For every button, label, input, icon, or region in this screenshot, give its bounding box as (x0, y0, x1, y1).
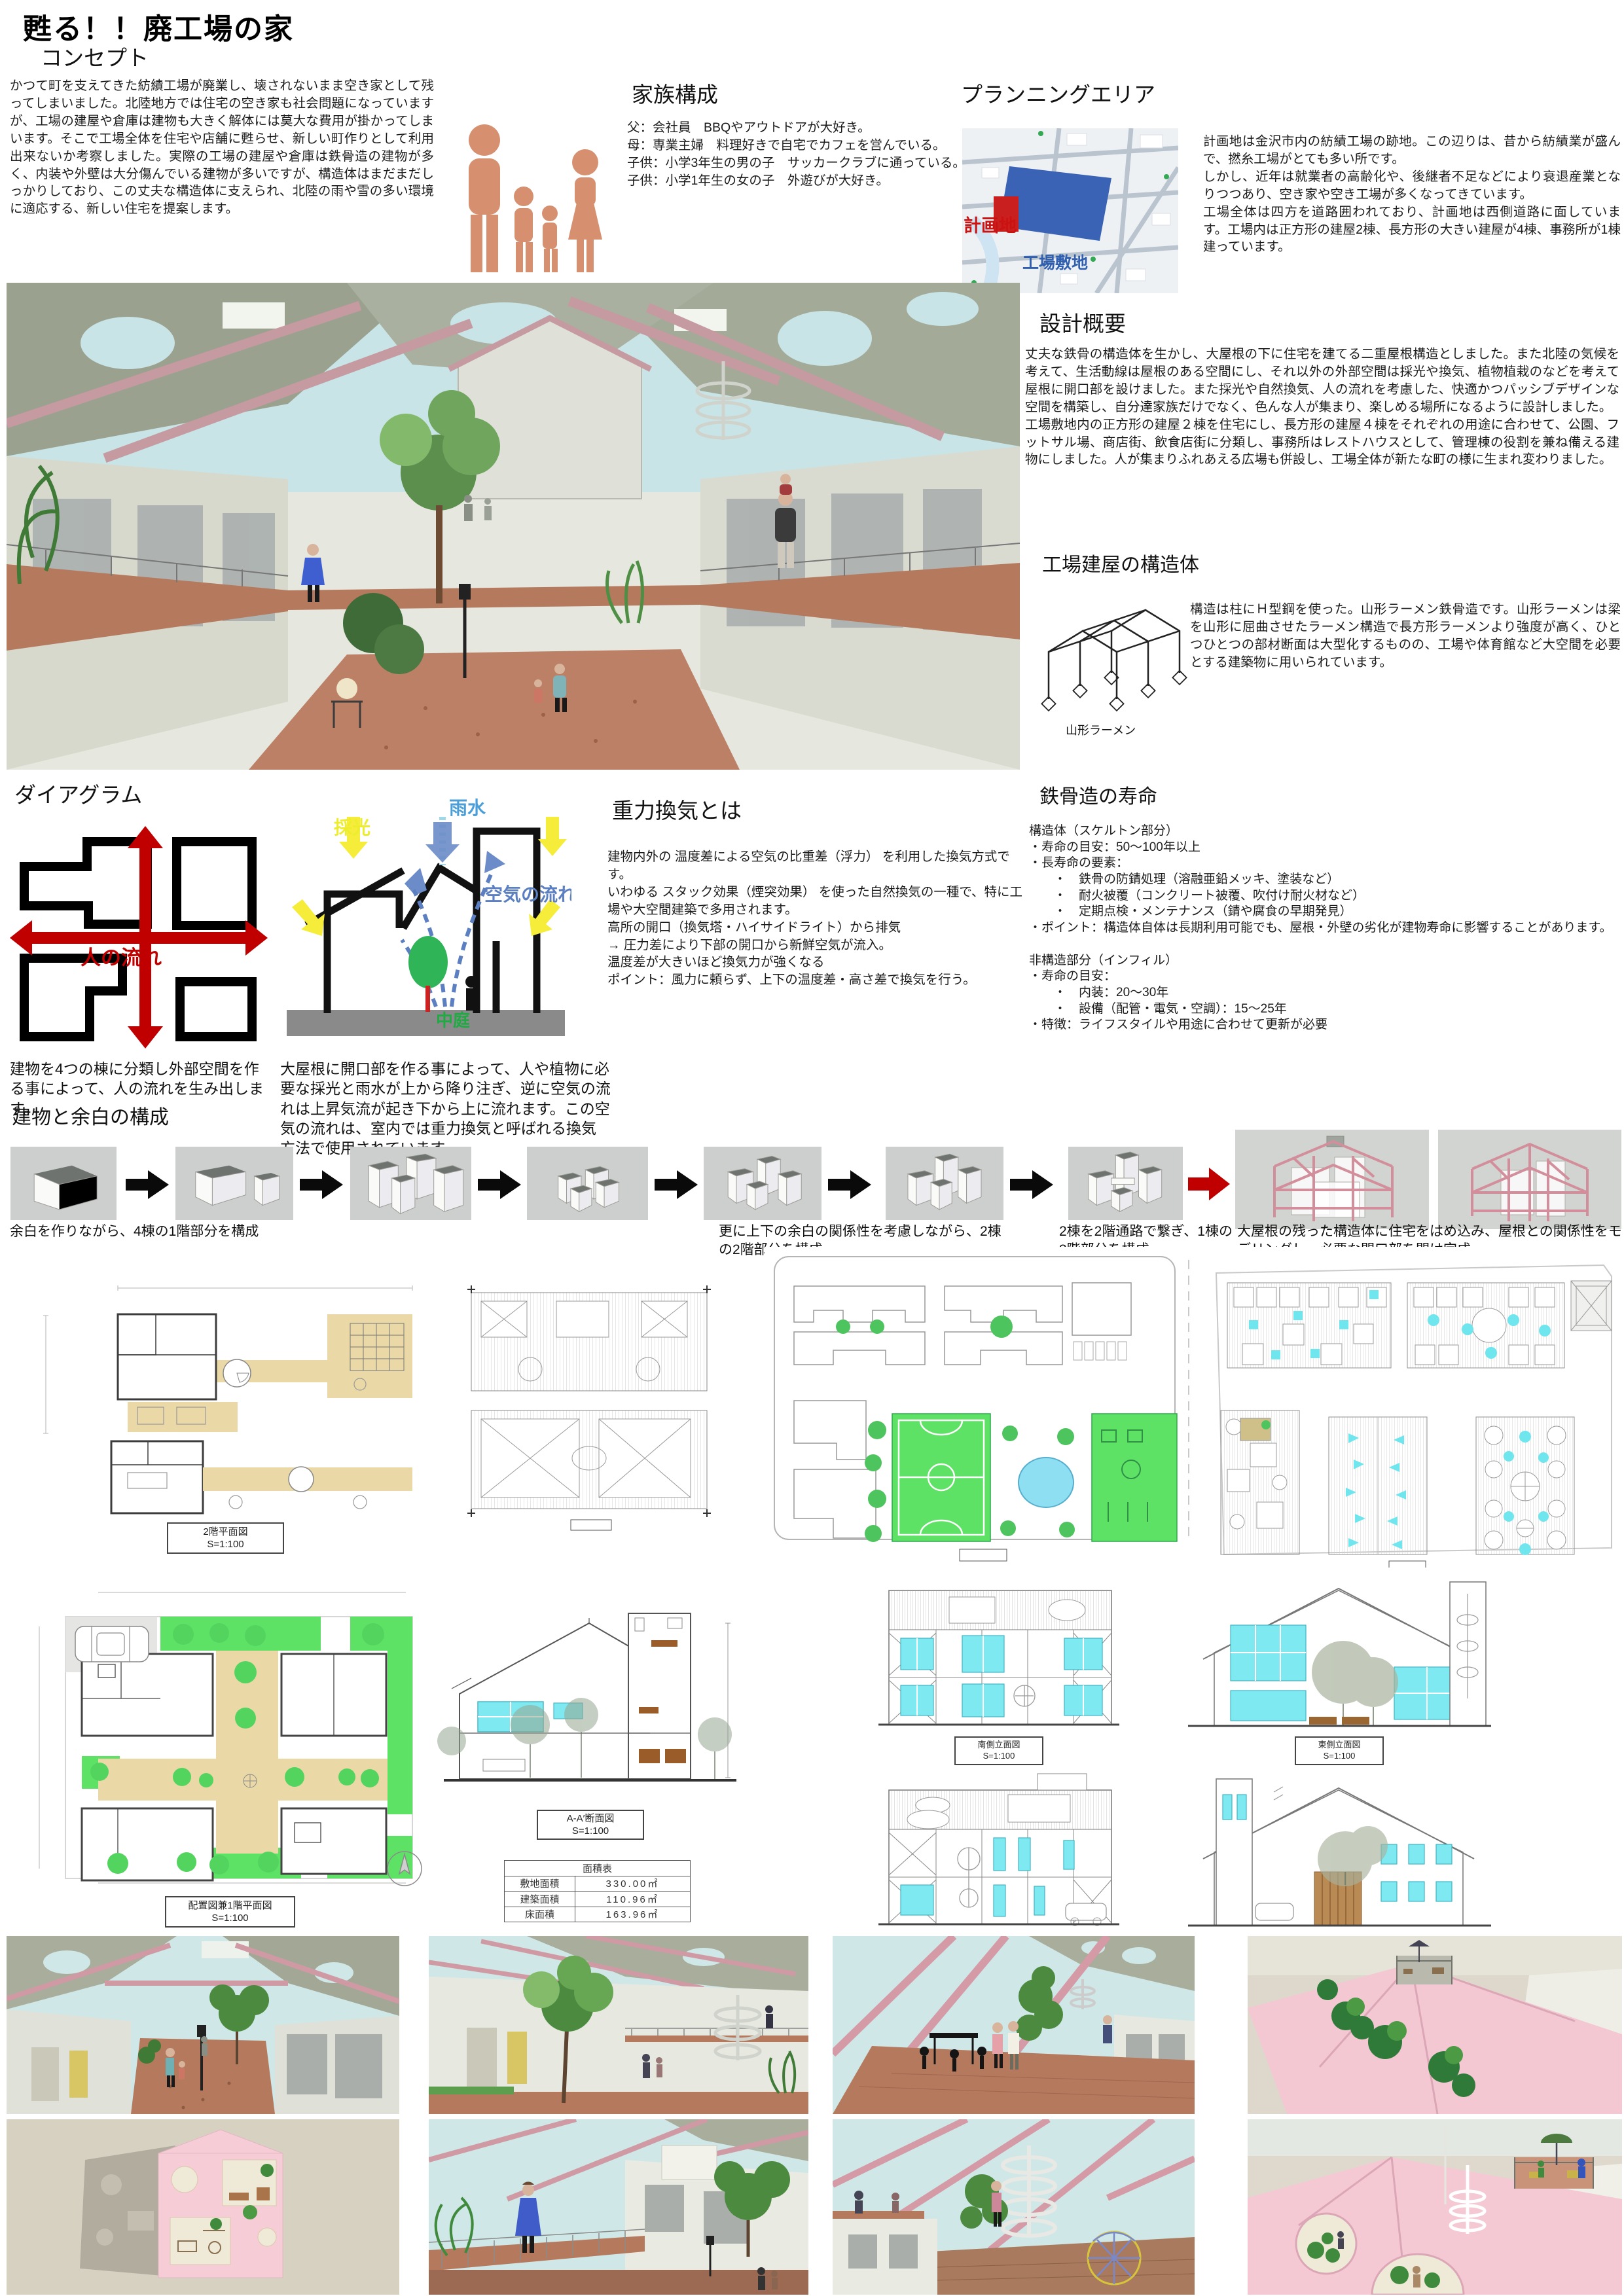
site-roof-plan-drawing (1211, 1247, 1618, 1571)
hero-rendering (7, 283, 1020, 770)
massing-frame-model-1 (1235, 1130, 1429, 1229)
design-heading: 設計概要 (1039, 306, 1126, 338)
flow-label: 人の流れ (81, 946, 162, 969)
structure-caption: 山形ラーメン (1066, 721, 1136, 738)
massing-heading: 建物と余白の構成 (12, 1101, 169, 1130)
render-courtyard-tree (429, 1936, 808, 2114)
massing-arrow-4 (655, 1170, 698, 1199)
elevation-east-drawing: 東側立面図 S=1:100 (1178, 1568, 1499, 1731)
massing-arrow-5 (828, 1170, 871, 1199)
map-site-label: 計画地 (964, 215, 1017, 236)
gravity-body: 建物内外の 温度差による空気の比重差（浮力） を利用した換気方式です。 いわゆる… (607, 848, 1023, 989)
planning-heading: プランニングエリア (961, 77, 1155, 109)
area-row-value: 163.96㎡ (575, 1907, 690, 1922)
plan-2f-drawing: 2階平面図 S=1:100 (20, 1276, 422, 1520)
area-row-value: 110.96㎡ (575, 1892, 690, 1907)
massing-arrow-3 (478, 1170, 521, 1199)
massing-step-2 (175, 1147, 293, 1220)
plan-2f-label: 2階平面図 S=1:100 (167, 1522, 284, 1554)
steel-body: 構造体（スケルトン部分） ・寿命の目安：50～100年以上 ・長寿命の要素： ・… (1029, 823, 1618, 1033)
structure-body: 構造は柱にＨ型鋼を使った。山形ラーメン鉄骨造です。山形ラーメンは梁を山形に屈曲さ… (1190, 601, 1621, 672)
family-body: 父：会社員 BBQやアウトドアが大好き。 母：専業主婦 料理好きで自宅でカフェを… (627, 119, 997, 190)
elevation-south-label: 南側立面図 S=1:100 (954, 1736, 1043, 1765)
massing-frame-model-2 (1438, 1130, 1621, 1229)
ventilation-diagram: 採光 雨水 空気の流れ 中庭 (280, 791, 571, 1052)
family-heading: 家族構成 (632, 77, 718, 109)
area-table-title: 面積表 (505, 1861, 691, 1876)
concept-body: かつて町を支えてきた紡績工場が廃業し、壊されないまま空き家として残ってしまいまし… (10, 77, 434, 218)
area-table: 面積表 敷地面積 330.00㎡ 建築面積 110.96㎡ 床面積 163.96… (504, 1860, 691, 1922)
daylight-label: 採光 (334, 817, 370, 838)
massing-arrow-final (1188, 1168, 1230, 1200)
massing-caption-1: 余白を作りながら、4棟の1階部分を構成 (10, 1223, 416, 1241)
massing-arrow-2 (300, 1170, 343, 1199)
massing-step-3 (350, 1147, 471, 1220)
structure-heading: 工場建屋の構造体 (1042, 548, 1199, 577)
massing-step-4 (527, 1147, 648, 1220)
courtyard-label: 中庭 (436, 1011, 470, 1030)
gravity-heading: 重力換気とは (612, 793, 742, 825)
steel-heading: 鉄骨造の寿命 (1039, 780, 1157, 809)
render-pink-roof-aerial (1248, 1936, 1622, 2114)
air-flow-label: 空気の流れ (484, 884, 571, 905)
family-figures-icon (450, 123, 607, 287)
area-row-value: 330.00㎡ (575, 1876, 690, 1892)
elevation-west-drawing: 西側立面図 S=1:100 (1178, 1767, 1499, 1931)
map-factory-label: 工場敷地 (1022, 253, 1088, 272)
elevation-north-drawing: 北側立面図 S=1:100 (871, 1767, 1126, 1931)
render-roofscape-circles (1248, 2119, 1622, 2295)
planning-map: 計画地 工場敷地 (962, 128, 1178, 293)
render-cafe-terrace (833, 1936, 1195, 2114)
diagram-heading: ダイアグラム (14, 778, 142, 809)
render-street-lamp (7, 1936, 399, 2114)
structure-diagram (1029, 589, 1193, 720)
area-row-name: 建築面積 (505, 1892, 575, 1907)
render-balcony-woman (429, 2119, 808, 2295)
section-drawing: A-A′断面図 S=1:100 面積表 敷地面積 330.00㎡ 建築面積 11… (432, 1584, 749, 1803)
pond (1019, 1458, 1074, 1507)
planning-body: 計画地は金沢市内の紡績工場の跡地。この辺りは、昔から紡績業が盛んで、撚糸工場がと… (1203, 133, 1621, 256)
elevation-south-drawing: 南側立面図 S=1:100 (871, 1568, 1126, 1731)
roof-plan-drawing (432, 1276, 746, 1532)
massing-arrow-6 (1010, 1170, 1053, 1199)
massing-step-5 (704, 1147, 821, 1220)
massing-step-6 (886, 1147, 1003, 1220)
massing-step-7 (1068, 1147, 1183, 1220)
family-pictogram (450, 123, 607, 287)
render-spiral-play (833, 2119, 1195, 2295)
vent-caption: 大屋根に開口部を作る事によって、人や植物に必要な採光と雨水が上から降り注ぎ、逆に… (280, 1059, 611, 1158)
site-plan-park-drawing (765, 1247, 1200, 1571)
site-1f-plan-label: 配置図兼1階平面図 S=1:100 (165, 1896, 295, 1928)
design-body: 丈夫な鉄骨の構造体を生かし、大屋根の下に住宅を建てる二重屋根構造としました。また… (1025, 346, 1619, 469)
area-row-name: 敷地面積 (505, 1876, 575, 1892)
concept-heading: コンセプト (41, 41, 149, 72)
courtyard-tree-icon (408, 936, 448, 988)
presentation-board: 甦る！！廃工場の家 コンセプト かつて町を支えてきた紡績工場が廃業し、壊されない… (0, 0, 1624, 2296)
flow-diagram: 人の流れ (10, 826, 268, 1049)
massing-step-1 (10, 1147, 117, 1220)
rain-label: 雨水 (449, 798, 486, 818)
massing-arrow-1 (126, 1170, 169, 1199)
section-label: A-A′断面図 S=1:100 (537, 1810, 644, 1840)
elevation-east-label: 東側立面図 S=1:100 (1295, 1736, 1384, 1765)
render-dollhouse-cutaway (7, 2119, 399, 2295)
site-1f-plan-drawing: 配置図兼1階平面図 S=1:100 (20, 1581, 432, 1895)
area-row-name: 床面積 (505, 1907, 575, 1922)
